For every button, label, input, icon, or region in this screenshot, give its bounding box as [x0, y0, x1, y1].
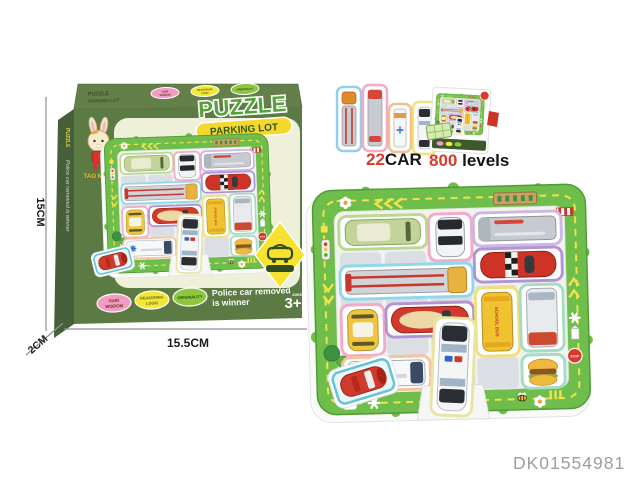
- height-dimension-label: 15CM: [34, 197, 46, 226]
- box-left-face: [54, 109, 74, 338]
- product-box: PUZZLE PARKING LOT GAIN WISDOM REASONING…: [54, 83, 305, 338]
- box-side-logo: PUZZLE: [64, 128, 70, 148]
- product-photo: STOP P: [0, 0, 640, 480]
- product-code: DK01554981: [513, 453, 625, 473]
- svg-text:LOGIC: LOGIC: [201, 91, 210, 95]
- levels-count-unit: levels: [457, 151, 509, 170]
- age-badge: 3+: [284, 295, 301, 312]
- svg-text:WISDOM: WISDOM: [105, 303, 123, 309]
- thumb-ambulance-piece: [389, 104, 411, 152]
- thumb-silver-truck-piece: [363, 85, 387, 151]
- svg-text:WISDOM: WISDOM: [160, 93, 171, 98]
- cars-count-value: 22: [366, 150, 385, 169]
- levels-count-value: 800: [429, 151, 457, 170]
- svg-text:LOGIC: LOGIC: [146, 300, 159, 306]
- booklet-tag: [487, 111, 499, 127]
- thumb-fire-truck-piece: [337, 87, 361, 151]
- box-side-text: Police car removed is winner: [64, 160, 70, 233]
- cars-count-label: 22CAR: [366, 150, 422, 169]
- cars-count-unit: CAR: [385, 150, 422, 169]
- scene: STOP P: [0, 0, 640, 480]
- car-piece-thumbnails: [337, 85, 436, 154]
- age-note: AGES: [292, 293, 302, 297]
- booklet-badge-icon: [480, 91, 489, 100]
- box-title-logo: PUZZLE PARKING LOT: [194, 91, 293, 141]
- svg-text:PUZZLE: PUZZLE: [88, 91, 110, 98]
- booklet-grid-pad: [426, 123, 452, 140]
- width-dimension-label: 15.5CM: [167, 336, 209, 350]
- levels-count-label: 800 levels: [429, 151, 509, 170]
- levels-booklet-thumbnail: [426, 87, 499, 154]
- svg-text:is winner: is winner: [212, 297, 250, 308]
